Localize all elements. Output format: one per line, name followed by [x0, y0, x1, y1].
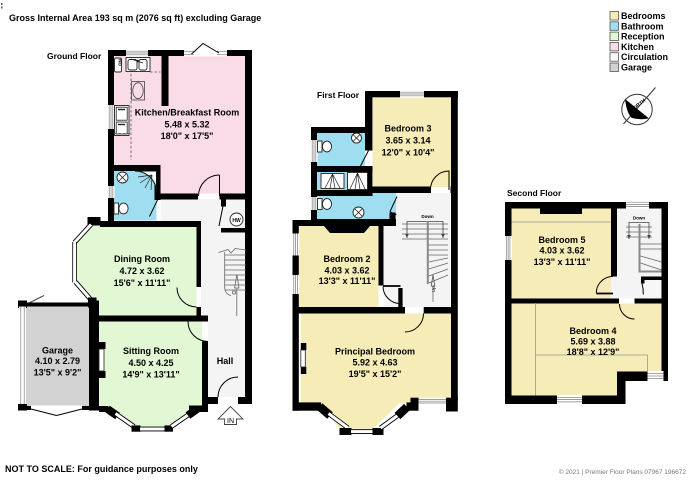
svg-text:18'0" x 17'5": 18'0" x 17'5"	[161, 131, 214, 141]
svg-text:Second Floor: Second Floor	[507, 188, 562, 198]
svg-text:Kitchen: Kitchen	[621, 42, 654, 52]
svg-text:ON: ON	[118, 59, 123, 66]
svg-text:Hall: Hall	[217, 356, 234, 366]
svg-text:3.65 x 3.14: 3.65 x 3.14	[385, 136, 430, 146]
svg-text:5.92 x 4.63: 5.92 x 4.63	[352, 358, 397, 368]
svg-text:4.72 x 3.62: 4.72 x 3.62	[119, 266, 164, 276]
svg-text:Dining Room: Dining Room	[114, 254, 170, 264]
svg-text:Bedroom 2: Bedroom 2	[323, 254, 370, 264]
svg-text:First Floor: First Floor	[317, 90, 360, 100]
svg-text:13'5" x 9'2": 13'5" x 9'2"	[34, 368, 82, 378]
svg-text:4.03 x 3.62: 4.03 x 3.62	[324, 266, 369, 276]
svg-text:14'9" x 13'11": 14'9" x 13'11"	[122, 370, 179, 380]
svg-text:Up: Up	[431, 286, 436, 292]
svg-text:Down: Down	[633, 216, 645, 221]
svg-text:19'5" x 15'2": 19'5" x 15'2"	[349, 369, 402, 379]
svg-text:Garage: Garage	[42, 346, 73, 356]
svg-text:Down: Down	[421, 214, 433, 219]
svg-text:5.69 x 3.88: 5.69 x 3.88	[570, 337, 615, 347]
svg-text:Ground Floor: Ground Floor	[47, 51, 102, 61]
svg-text:NOT TO SCALE: For guidance pur: NOT TO SCALE: For guidance purposes only	[5, 464, 198, 474]
svg-text:4.10 x 2.79: 4.10 x 2.79	[35, 356, 80, 366]
svg-text:HW: HW	[232, 218, 241, 224]
svg-text:Bedrooms: Bedrooms	[621, 11, 666, 21]
svg-text:Principal Bedroom: Principal Bedroom	[335, 347, 415, 357]
svg-text:Garage: Garage	[621, 63, 652, 73]
svg-text:© 2021 | Premier Floor Plans 0: © 2021 | Premier Floor Plans 07967 19667…	[559, 468, 687, 476]
svg-text:Bedroom 5: Bedroom 5	[538, 235, 585, 245]
svg-text:Sitting Room: Sitting Room	[123, 346, 179, 356]
svg-text:Reception: Reception	[621, 32, 665, 42]
svg-text:Bedroom 3: Bedroom 3	[384, 124, 431, 134]
svg-text:Circulation: Circulation	[621, 52, 668, 62]
svg-text:Gross Internal Area 193 sq m (: Gross Internal Area 193 sq m (2076 sq ft…	[9, 13, 261, 23]
svg-text:Bedroom 4: Bedroom 4	[569, 326, 616, 336]
svg-text:18'8" x 12'9": 18'8" x 12'9"	[567, 347, 620, 357]
svg-text:Kitchen/Breakfast Room: Kitchen/Breakfast Room	[135, 108, 240, 118]
svg-text:15'6" x 11'11": 15'6" x 11'11"	[114, 278, 171, 288]
svg-text:IN: IN	[227, 418, 234, 425]
svg-text:Bathroom: Bathroom	[621, 21, 664, 31]
svg-text:4.03 x 3.62: 4.03 x 3.62	[539, 246, 584, 256]
svg-text:12'0" x 10'4": 12'0" x 10'4"	[382, 148, 435, 158]
svg-text:4.50 x 4.25: 4.50 x 4.25	[128, 358, 173, 368]
svg-text:5.48 x 5.32: 5.48 x 5.32	[164, 120, 209, 130]
svg-text:13'3" x 11'11": 13'3" x 11'11"	[319, 276, 376, 286]
svg-text:13'3" x 11'11": 13'3" x 11'11"	[534, 257, 591, 267]
